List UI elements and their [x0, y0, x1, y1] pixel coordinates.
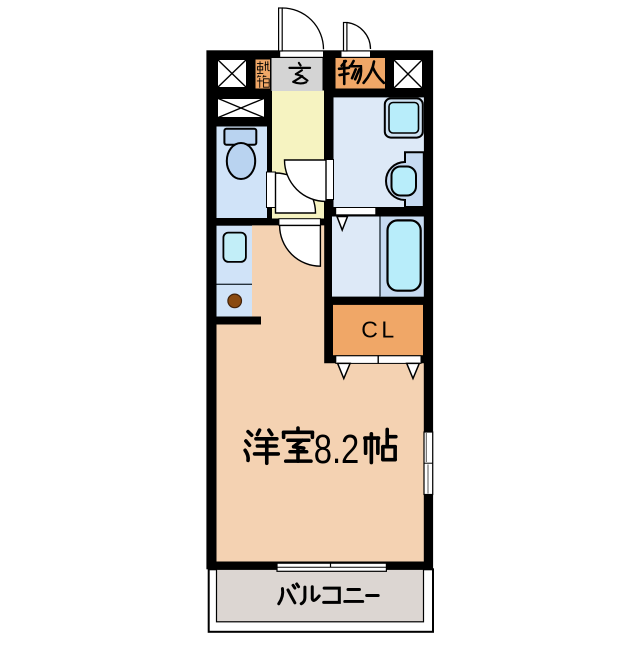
svg-text:8.2: 8.2: [314, 425, 360, 471]
svg-text:CL: CL: [361, 317, 397, 343]
